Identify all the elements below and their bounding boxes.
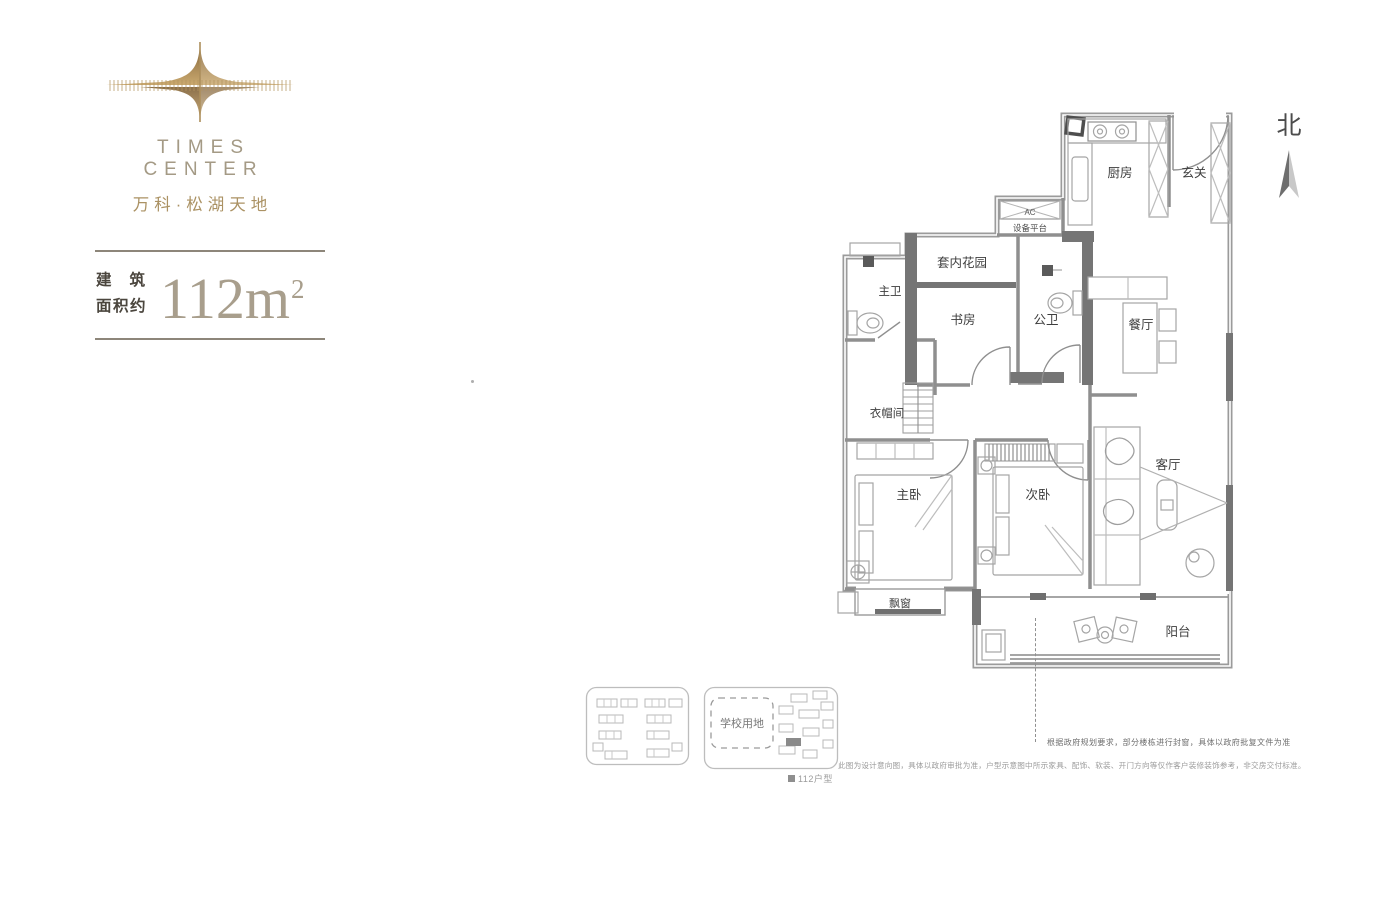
- area-caption-line2: 面积约: [96, 294, 160, 320]
- interior-walls: [845, 115, 1169, 589]
- second-bedroom-label: 次卧: [1025, 488, 1050, 502]
- balcony-rail: [976, 597, 1229, 663]
- brand-subtitle: 万科·松湖天地: [88, 191, 312, 215]
- area-superscript: 2: [291, 274, 305, 304]
- stray-dot: [471, 380, 474, 383]
- ac-platform: AC 设备平台: [1000, 201, 1060, 233]
- legend-label: 112户型: [798, 772, 833, 785]
- master-bedroom-furniture: [847, 443, 952, 583]
- area-value: 112m2: [160, 263, 304, 325]
- balcony-furniture: [982, 617, 1137, 660]
- brand-logo: TIMES CENTER 万科·松湖天地: [88, 38, 312, 215]
- highlighted-unit-building: [786, 738, 801, 746]
- leader-line: [1035, 618, 1036, 742]
- area-caption-line1: 建筑: [96, 268, 160, 294]
- study-label: 书房: [950, 312, 975, 327]
- guest-bath-label: 公卫: [1033, 313, 1058, 327]
- kitchen-label: 厨房: [1107, 165, 1132, 180]
- north-indicator: 北: [1266, 106, 1312, 207]
- unit-legend: 112户型: [788, 772, 833, 785]
- foyer-closet: [1211, 123, 1230, 223]
- siteplan-buildings: [779, 691, 833, 758]
- master-bedroom-label: 主卧: [896, 488, 921, 502]
- school-land-label: 学校用地: [720, 716, 764, 730]
- guest-bath-fixtures: [1042, 265, 1082, 315]
- page: TIMES CENTER 万科·松湖天地 建筑 面积约 112m2 北: [0, 0, 1400, 907]
- bay-window-label: 飘窗: [889, 596, 911, 610]
- flue-column: [1066, 117, 1084, 135]
- slider-tick: [1140, 593, 1156, 600]
- living-room-furniture: [1094, 427, 1227, 585]
- siteplan-right: 学校用地: [703, 686, 839, 770]
- dining-label: 餐厅: [1128, 317, 1153, 332]
- inner-garden-label: 套内花园: [937, 255, 987, 270]
- second-bedroom-furniture: [978, 444, 1083, 575]
- balcony-label: 阳台: [1165, 624, 1190, 639]
- spire-logo-icon: [100, 38, 300, 132]
- north-arrow-icon: [1276, 148, 1302, 202]
- ac-label: AC: [1024, 208, 1035, 217]
- area-badge-caption: 建筑 面积约: [96, 268, 160, 320]
- master-bath-label: 主卫: [879, 285, 902, 298]
- cloakroom-wardrobe: [903, 383, 933, 433]
- disclaimer-note: 此图为设计意向图，具体以政府审批为准，户型示意图中所示家具、配饰、软装、开门方向…: [838, 760, 1306, 771]
- slider-tick: [1030, 593, 1046, 600]
- legend-swatch: [788, 775, 795, 782]
- floor-plan: AC 设备平台: [830, 95, 1250, 685]
- siteplan-left: [585, 686, 690, 766]
- cloakroom-label: 衣帽间: [870, 406, 905, 420]
- brand-title: TIMES CENTER: [88, 137, 312, 181]
- foyer-label: 玄关: [1181, 165, 1206, 180]
- living-room-label: 客厅: [1155, 457, 1180, 472]
- window-note: 根据政府规划要求，部分楼栋进行封窗，具体以政府批复文件为准: [1047, 737, 1291, 748]
- area-badge: 建筑 面积约 112m2: [95, 250, 325, 340]
- north-label: 北: [1266, 106, 1312, 142]
- structural-walls: [905, 231, 1233, 625]
- area-number: 112m: [160, 266, 290, 331]
- equipment-platform-label: 设备平台: [1013, 223, 1047, 233]
